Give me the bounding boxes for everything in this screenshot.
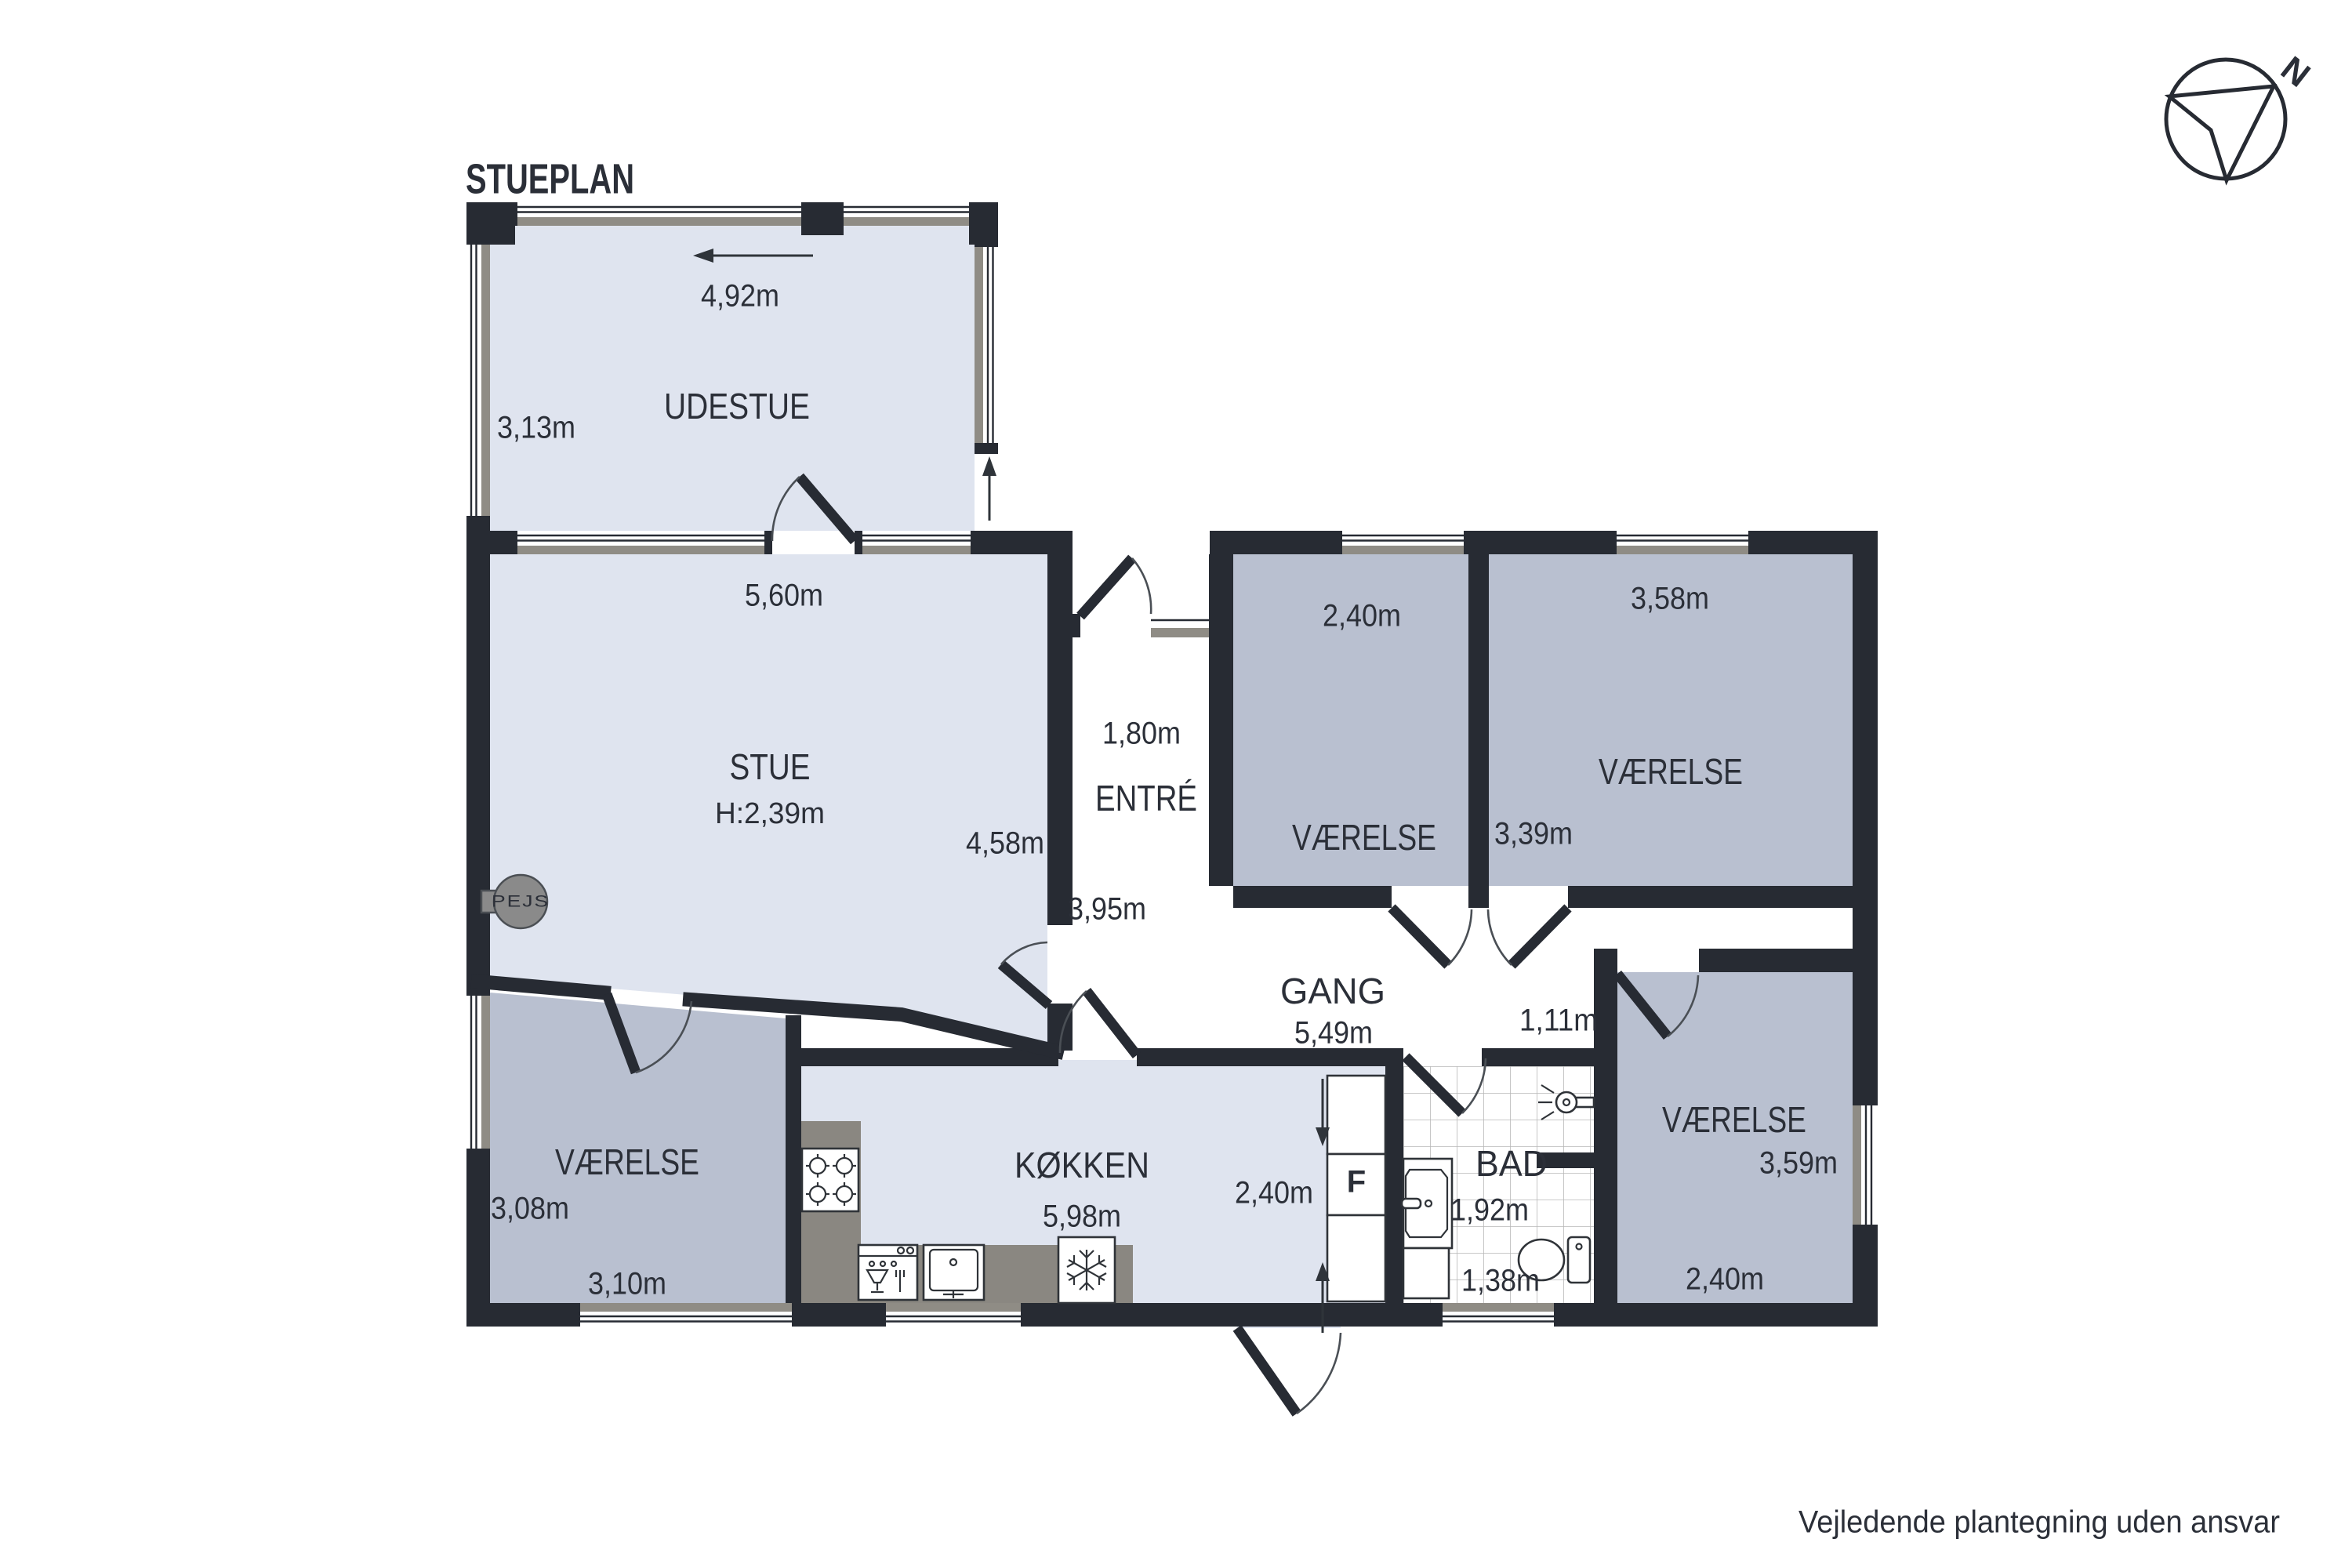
label-vaerelse-syd: VÆRELSE <box>1662 1099 1806 1140</box>
label-vaerelse-vest: VÆRELSE <box>555 1142 699 1182</box>
dishwasher-icon <box>858 1245 917 1300</box>
window-vaerelse-vest-west <box>466 996 490 1149</box>
label-vaerelse-nord-2: VÆRELSE <box>1599 751 1743 792</box>
label-stue: STUE <box>730 746 811 787</box>
measure-bad-lower: 1,38m <box>1461 1264 1540 1298</box>
compass-north-label: N <box>2274 49 2317 95</box>
compass-icon <box>2166 60 2285 180</box>
measure-v2-depth: 3,39m <box>1494 817 1573 851</box>
window-udestue-top-2 <box>844 202 969 226</box>
window-stue-north-2 <box>862 531 971 554</box>
measure-entre-depth: 3,95m <box>1068 892 1146 927</box>
measure-v1-width: 2,40m <box>1323 599 1401 633</box>
measure-v3-depth: 3,08m <box>491 1192 569 1226</box>
window-udestue-top-1 <box>517 202 801 226</box>
window-entre-alcove <box>1151 614 1209 637</box>
measure-koekken-width: 5,98m <box>1043 1200 1121 1234</box>
window-udestue-east <box>975 247 998 443</box>
freezer-icon <box>1058 1237 1115 1303</box>
label-cabinet-f: F <box>1347 1165 1366 1200</box>
measure-v3-width: 3,10m <box>588 1267 666 1301</box>
north-arrow <box>2169 86 2274 180</box>
door-vaerelse-nord-2 <box>1488 908 1568 965</box>
door-entrance <box>1080 558 1151 616</box>
page-title: STUEPLAN <box>466 155 634 202</box>
measure-udestue-width: 4,92m <box>701 279 779 314</box>
kitchen-sink-icon <box>924 1245 984 1300</box>
measure-entre-width: 1,80m <box>1102 717 1181 751</box>
label-entre: ENTRÉ <box>1095 778 1197 818</box>
measure-stue-height: H:2,39m <box>715 797 825 830</box>
window-vaerelse-nord-1-top <box>1342 531 1464 554</box>
stove-icon <box>802 1149 858 1211</box>
window-south-koekken <box>886 1303 1021 1327</box>
measure-v2-width: 3,58m <box>1631 582 1709 616</box>
room-udestue-floor <box>490 226 975 531</box>
udestue-exit-arrow <box>982 456 996 521</box>
door-backdoor <box>1237 1328 1341 1414</box>
bath-sink-icon <box>1402 1159 1452 1298</box>
label-fireplace: PEJS <box>492 893 550 911</box>
window-south-vaerelse-vest <box>580 1303 792 1327</box>
label-vaerelse-nord-1: VÆRELSE <box>1292 817 1436 858</box>
measure-koekken-depth: 2,40m <box>1235 1176 1313 1210</box>
measure-stue-depth: 4,58m <box>966 826 1044 861</box>
label-gang: GANG <box>1280 971 1385 1011</box>
window-vaerelse-nord-2-top <box>1617 531 1748 554</box>
disclaimer-text: Vejledende plantegning uden ansvar <box>1798 1505 2280 1540</box>
floorplan-drawing: STUEPLANVejledende plantegning uden ansv… <box>0 0 2352 1568</box>
window-vaerelse-syd-east <box>1853 1105 1878 1225</box>
measure-v4-width: 2,40m <box>1686 1262 1764 1297</box>
measure-udestue-depth: 3,13m <box>497 411 575 445</box>
window-south-bad <box>1443 1303 1554 1327</box>
label-koekken: KØKKEN <box>1014 1145 1149 1185</box>
label-udestue: UDESTUE <box>664 386 810 426</box>
label-bad: BAD <box>1475 1143 1548 1184</box>
door-vaerelse-nord-1 <box>1392 908 1472 965</box>
window-stue-north-1 <box>517 531 764 554</box>
measure-gang-passage: 1,11m <box>1519 1004 1598 1038</box>
floorplan-page: STUEPLANVejledende plantegning uden ansv… <box>0 0 2352 1568</box>
window-udestue-west <box>466 245 490 516</box>
measure-gang-length: 5,49m <box>1294 1016 1373 1051</box>
measure-stue-width: 5,60m <box>745 579 823 613</box>
measure-v4-depth: 3,59m <box>1759 1146 1838 1181</box>
measure-bad-width: 1,92m <box>1450 1193 1529 1228</box>
